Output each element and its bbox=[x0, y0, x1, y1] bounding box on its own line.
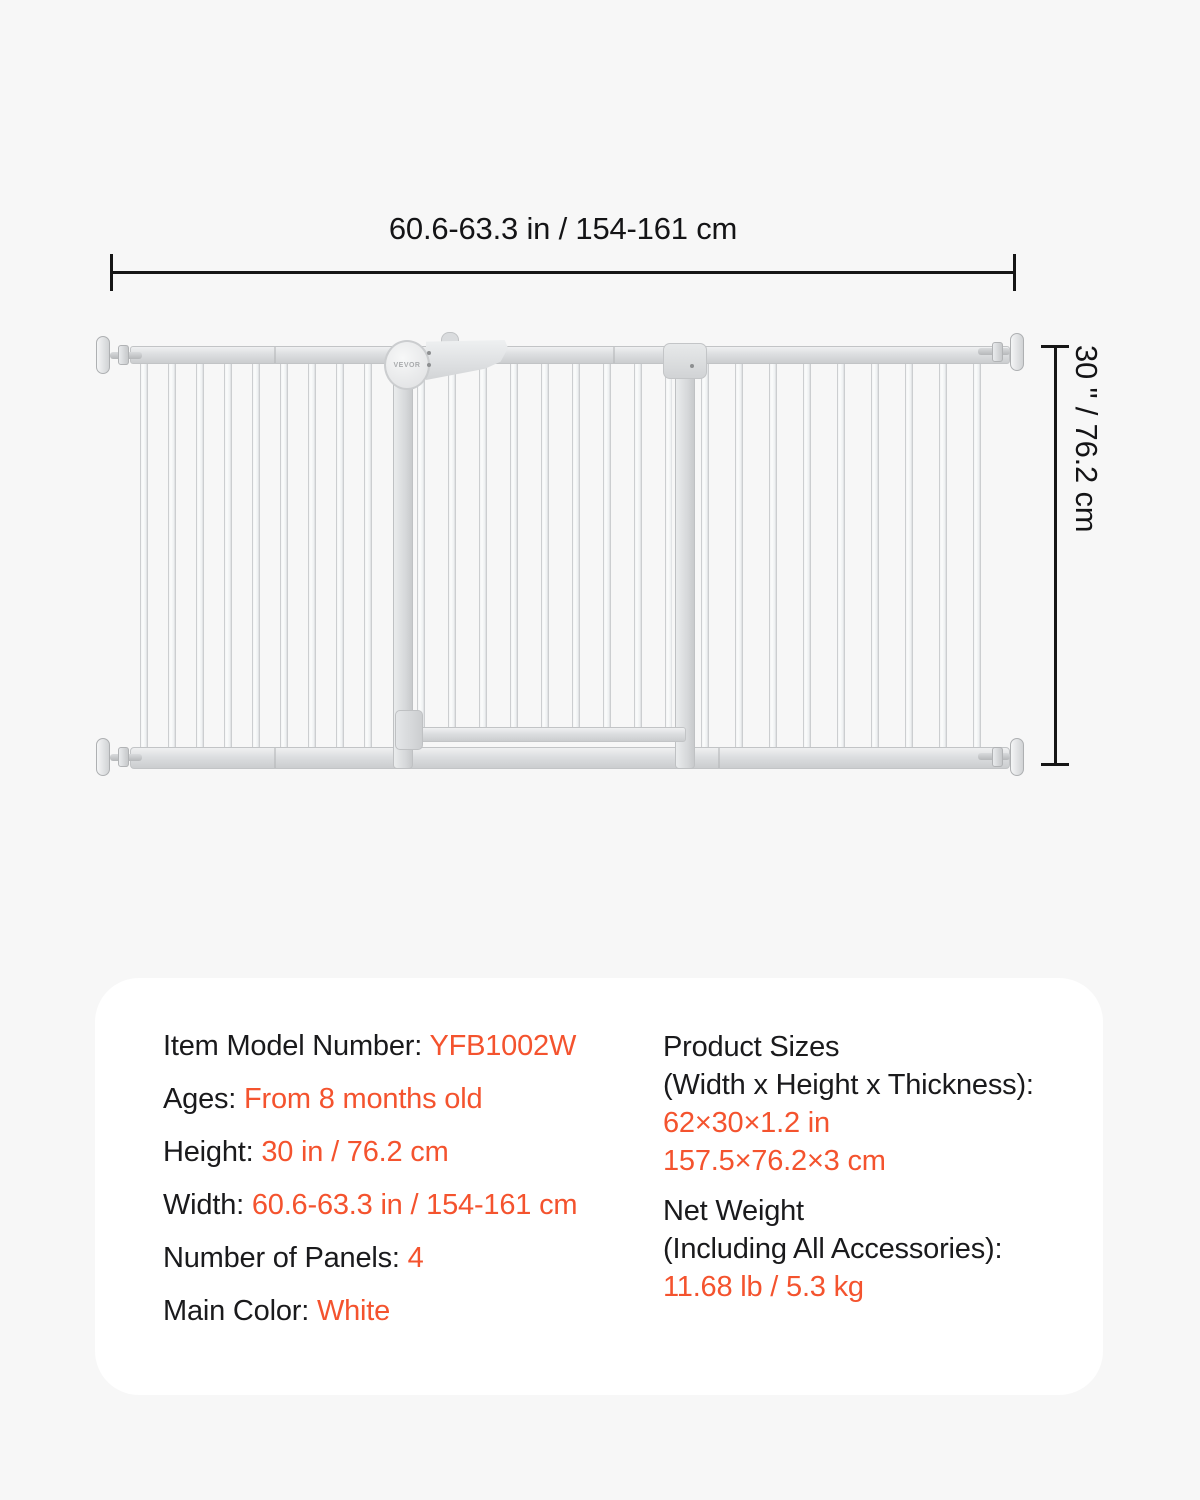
spec-panel: Item Model Number: YFB1002W Ages: From 8… bbox=[95, 978, 1103, 1395]
spec-value: 157.5×76.2×3 cm bbox=[663, 1142, 1034, 1180]
spec-label: (Including All Accessories): bbox=[663, 1230, 1034, 1268]
rail-joint bbox=[274, 347, 276, 363]
latch-screw bbox=[427, 363, 431, 367]
door-top-hinge-bracket bbox=[663, 343, 707, 379]
spec-row-ages: Ages: From 8 months old bbox=[163, 1081, 577, 1118]
spec-block-net-weight: Net Weight (Including All Accessories): … bbox=[663, 1192, 1034, 1306]
spec-list-left: Item Model Number: YFB1002W Ages: From 8… bbox=[163, 1028, 577, 1330]
gate-door-bars bbox=[417, 362, 672, 730]
height-dimension-label: 30 " / 76.2 cm bbox=[1068, 345, 1104, 767]
spec-list-right: Product Sizes (Width x Height x Thicknes… bbox=[663, 1028, 1034, 1306]
spec-label: Item Model Number: bbox=[163, 1030, 429, 1062]
width-dimension-label: 60.6-63.3 in / 154-161 cm bbox=[110, 211, 1016, 247]
spec-row-color: Main Color: White bbox=[163, 1293, 577, 1330]
spec-row-width: Width: 60.6-63.3 in / 154-161 cm bbox=[163, 1187, 577, 1224]
height-dimension-cap-top bbox=[1041, 345, 1069, 348]
spec-row-model: Item Model Number: YFB1002W bbox=[163, 1028, 577, 1065]
spec-label: Ages: bbox=[163, 1083, 244, 1115]
width-dimension-tick-right bbox=[1013, 254, 1016, 291]
spec-value: 4 bbox=[408, 1242, 424, 1274]
hinge-screw bbox=[690, 364, 694, 368]
spec-label: Net Weight bbox=[663, 1192, 1034, 1230]
wall-mount-disc bbox=[96, 738, 110, 776]
spec-label: Number of Panels: bbox=[163, 1242, 408, 1274]
rail-joint bbox=[718, 748, 720, 768]
wall-mount-nut bbox=[118, 747, 129, 767]
door-bottom-crossbar bbox=[404, 727, 686, 742]
spec-value: 30 in / 76.2 cm bbox=[261, 1136, 448, 1168]
spec-value: 62×30×1.2 in bbox=[663, 1104, 1034, 1142]
spec-value: From 8 months old bbox=[244, 1083, 482, 1115]
product-spec-image: 60.6-63.3 in / 154-161 cm 30 " / 76.2 cm bbox=[0, 0, 1200, 1500]
latch-release-button bbox=[441, 332, 459, 342]
spec-label: Width: bbox=[163, 1189, 252, 1221]
spec-label: Product Sizes bbox=[663, 1028, 1034, 1066]
spec-value: 60.6-63.3 in / 154-161 cm bbox=[252, 1189, 577, 1221]
rail-joint bbox=[274, 748, 276, 768]
spec-label: Height: bbox=[163, 1136, 261, 1168]
wall-mount-disc bbox=[1010, 333, 1024, 371]
height-dimension-cap-bottom bbox=[1041, 763, 1069, 766]
door-frame-right-post bbox=[675, 351, 695, 769]
spec-value: YFB1002W bbox=[429, 1030, 576, 1062]
latch-hinge-disc: VEVOR bbox=[384, 340, 430, 390]
wall-mount-nut bbox=[992, 747, 1003, 767]
door-frame-left-post bbox=[393, 349, 413, 769]
spec-block-product-sizes: Product Sizes (Width x Height x Thicknes… bbox=[663, 1028, 1034, 1180]
width-dimension-line bbox=[110, 271, 1016, 274]
rail-joint bbox=[613, 347, 615, 363]
spec-value: 11.68 lb / 5.3 kg bbox=[663, 1268, 1034, 1306]
spec-label: (Width x Height x Thickness): bbox=[663, 1066, 1034, 1104]
spec-value: White bbox=[317, 1295, 390, 1327]
brand-logo: VEVOR bbox=[393, 362, 420, 369]
wall-mount-nut bbox=[992, 342, 1003, 362]
spec-row-height: Height: 30 in / 76.2 cm bbox=[163, 1134, 577, 1171]
door-bottom-hinge bbox=[395, 710, 423, 750]
gate-left-panel-bars bbox=[140, 362, 386, 748]
wall-mount-disc bbox=[96, 336, 110, 374]
spec-row-panels: Number of Panels: 4 bbox=[163, 1240, 577, 1277]
latch-screw bbox=[427, 351, 431, 355]
spec-label: Main Color: bbox=[163, 1295, 317, 1327]
wall-mount-disc bbox=[1010, 738, 1024, 776]
wall-mount-nut bbox=[118, 345, 129, 365]
gate-bottom-rail bbox=[130, 747, 1010, 769]
gate-right-panel-bars bbox=[701, 362, 987, 748]
width-dimension-tick-left bbox=[110, 254, 113, 291]
gate-top-rail bbox=[130, 346, 1010, 364]
height-dimension-line bbox=[1054, 345, 1057, 766]
